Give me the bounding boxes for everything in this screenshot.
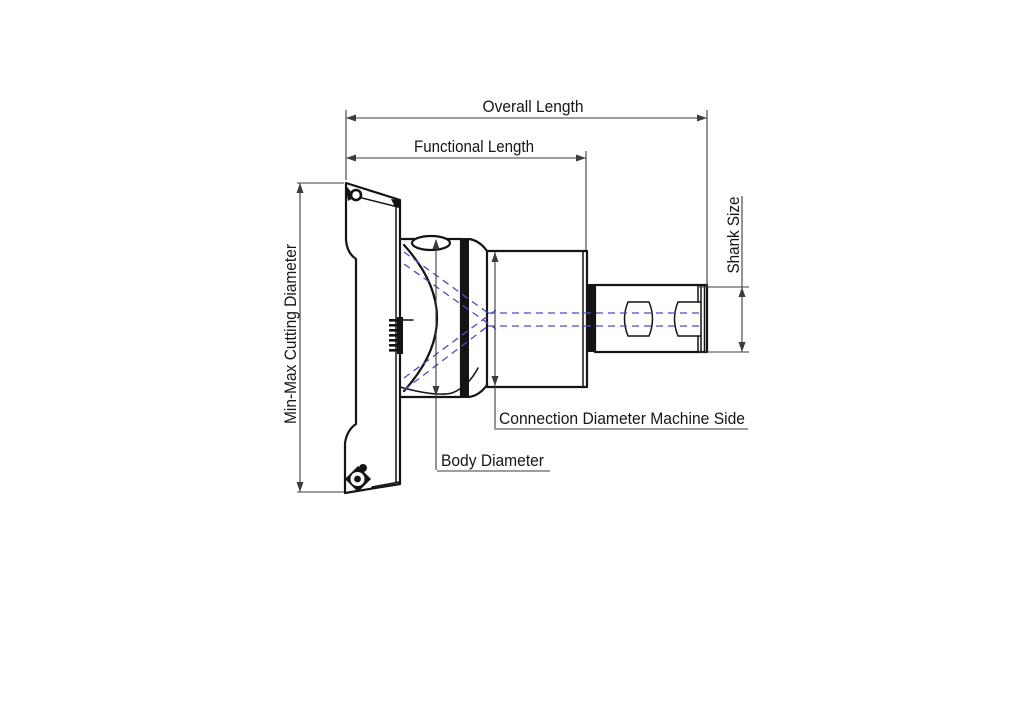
shank-size-arrow-top — [739, 287, 746, 297]
cutting-diameter-arrow-bottom — [297, 482, 304, 492]
functional-length-arrow-right — [576, 155, 586, 162]
overall-length-arrow-left — [346, 115, 356, 122]
body-outline — [399, 239, 461, 397]
shank — [588, 284, 707, 352]
body-diameter-label: Body Diameter — [441, 452, 544, 470]
shank-size-arrow-bottom — [739, 342, 746, 352]
cutter-head-outline — [345, 183, 400, 493]
tool-dimension-diagram: Overall Length Functional Length Min-Max… — [0, 0, 1024, 724]
cutting-diameter-lines — [297, 183, 344, 492]
overall-length-label: Overall Length — [483, 98, 584, 116]
body-collar-ring — [461, 238, 469, 398]
set-screw-hole — [412, 236, 450, 250]
min-max-cutting-diameter-label: Min-Max Cutting Diameter — [282, 244, 300, 424]
dimension-min-max-cutting-diameter: Min-Max Cutting Diameter — [282, 183, 344, 492]
tool-drawing — [345, 183, 707, 493]
top-insert-screw-icon — [351, 190, 361, 200]
overall-length-arrow-right — [697, 115, 707, 122]
shank-size-label: Shank Size — [725, 197, 743, 274]
functional-length-arrow-left — [346, 155, 356, 162]
functional-length-label: Functional Length — [414, 138, 534, 156]
technical-drawing-canvas: Overall Length Functional Length Min-Max… — [0, 0, 1024, 724]
cutting-diameter-arrow-top — [297, 183, 304, 193]
shank-outline — [595, 285, 707, 352]
cutter-head — [345, 183, 413, 493]
connection-diameter-machine-side-label: Connection Diameter Machine Side — [499, 410, 745, 428]
serration-bar — [397, 317, 403, 354]
connection-cylinder — [487, 251, 587, 387]
bottom-insert-screw-center — [354, 476, 361, 483]
connection-cylinder-outline — [487, 251, 587, 387]
